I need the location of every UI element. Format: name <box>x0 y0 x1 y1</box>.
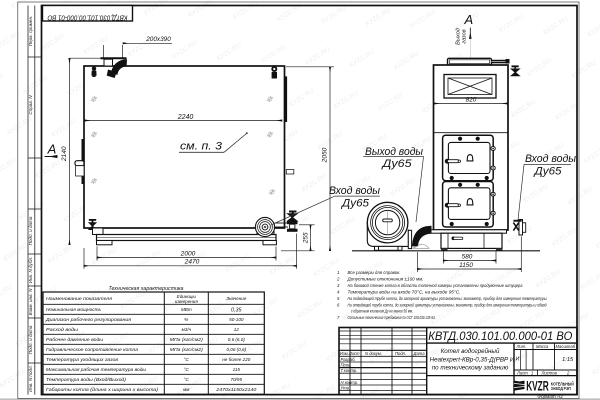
svg-text:255: 255 <box>302 232 309 244</box>
svg-text:Все размеры для справок.: Все размеры для справок. <box>348 270 401 275</box>
svg-text:820: 820 <box>466 97 477 104</box>
svg-text:Подп.: Подп. <box>395 351 406 356</box>
svg-text:ЗАВОД РЭП: ЗАВОД РЭП <box>551 386 571 391</box>
svg-text:см. п. 3: см. п. 3 <box>180 141 223 153</box>
svg-text:Изм.Лист: Изм.Лист <box>340 351 360 356</box>
svg-text:Ду65: Ду65 <box>380 158 412 170</box>
svg-text:Подп. и дата: Подп. и дата <box>28 216 33 245</box>
svg-text:Выход: Выход <box>455 28 461 45</box>
svg-text:Вход воды: Вход воды <box>525 153 576 165</box>
svg-text:Взам. инв. N: Взам. инв. N <box>28 288 33 315</box>
svg-text:Формат А3: Формат А3 <box>537 394 563 399</box>
svg-text:Расход воды: Расход воды <box>46 327 79 332</box>
svg-text:200х390: 200х390 <box>145 36 171 43</box>
svg-text:Температура воды на входе 70°С: Температура воды на входе 70°С, на выход… <box>348 290 461 295</box>
svg-text:Утв.: Утв. <box>341 385 351 390</box>
svg-text:Ду65: Ду65 <box>340 197 370 209</box>
svg-text:Габариты котла (длина х ширина: Габариты котла (длина х ширина х высота) <box>46 387 159 392</box>
svg-text:Выход воды: Выход воды <box>365 146 423 158</box>
svg-text:%: % <box>184 317 188 322</box>
svg-text:2240: 2240 <box>177 114 194 121</box>
svg-text:Вход воды: Вход воды <box>329 185 380 197</box>
svg-text:Номинальная мощность: Номинальная мощность <box>46 307 102 312</box>
svg-text:Пров.: Пров. <box>341 362 352 367</box>
svg-text:На отводящей трубе котла, до з: На отводящей трубе котла, до запорной ар… <box>348 302 547 307</box>
svg-text:мм: мм <box>183 387 190 392</box>
svg-text:70/95: 70/95 <box>231 377 243 382</box>
svg-text:На боковой стенке котла в обла: На боковой стенке котла в области топочн… <box>348 283 524 288</box>
svg-text:по техническому заданию: по техническому заданию <box>432 365 509 372</box>
svg-text:1150: 1150 <box>459 262 473 269</box>
svg-text:0,06 (0,6): 0,06 (0,6) <box>226 347 246 352</box>
svg-text:Справ. N: Справ. N <box>28 95 33 115</box>
svg-text:Гидравлическое сопротивление к: Гидравлическое сопротивление котла <box>46 347 138 352</box>
svg-text:0,6 (6,0): 0,6 (6,0) <box>228 337 246 342</box>
svg-text:Остальные технические требован: Остальные технические требования по ОСТ … <box>348 315 436 320</box>
svg-text:КВТД.030.101.00.000-01 ВО: КВТД.030.101.00.000-01 ВО <box>428 329 572 343</box>
svg-text:12: 12 <box>234 327 240 332</box>
svg-text:N докум.: N докум. <box>365 351 382 356</box>
svg-text:580: 580 <box>462 253 473 260</box>
svg-text:измерения: измерения <box>175 299 199 304</box>
svg-text:1:15: 1:15 <box>562 357 574 363</box>
svg-text:Т.контр.: Т.контр. <box>341 368 358 373</box>
svg-text:Ду65: Ду65 <box>532 165 562 177</box>
svg-text:А: А <box>47 142 57 157</box>
svg-text:2470х1150х2140: 2470х1150х2140 <box>215 387 257 392</box>
svg-text:А: А <box>463 12 473 27</box>
svg-text:Лит.: Лит. <box>516 344 527 349</box>
svg-text:115: 115 <box>233 367 241 372</box>
svg-text:м3/ч: м3/ч <box>182 327 192 332</box>
svg-text:Рабочее давление воды: Рабочее давление воды <box>46 337 104 342</box>
svg-text:МВт: МВт <box>181 307 192 312</box>
svg-text:Дата: Дата <box>413 351 426 356</box>
svg-text:Температура воды (Вход/Выход): Температура воды (Вход/Выход) <box>46 377 127 382</box>
svg-text:KVZR: KVZR <box>526 379 549 394</box>
svg-text:Масса: Масса <box>536 344 549 349</box>
svg-text:Лист: Лист <box>516 370 528 375</box>
svg-text:Н.контр.: Н.контр. <box>341 380 359 385</box>
svg-text:МПа (кгс/см2): МПа (кгс/см2) <box>170 337 204 342</box>
svg-text:Котел водогрейный: Котел водогрейный <box>441 348 500 355</box>
svg-text:2140: 2140 <box>61 146 68 162</box>
svg-text:2000: 2000 <box>180 250 196 257</box>
svg-text:Максимальная рабочая температу: Максимальная рабочая температура воды <box>46 367 147 372</box>
svg-text:не более 220: не более 220 <box>222 357 250 362</box>
svg-text:Наименование показателя: Наименование показателя <box>46 296 113 301</box>
svg-text:1: 1 <box>531 370 533 375</box>
svg-text:0,35: 0,35 <box>231 307 242 313</box>
svg-text:50-100: 50-100 <box>229 317 244 322</box>
svg-text:Диапазон рабочего регулировани: Диапазон рабочего регулирования <box>45 317 132 322</box>
svg-text:Температура уходящих газов: Температура уходящих газов <box>46 357 119 362</box>
svg-text:с обратным клапаном Ду не мен: с обратным клапаном Ду не менее 50 мм. <box>351 309 413 314</box>
svg-text:Техническая характеристика: Техническая характеристика <box>109 286 184 292</box>
svg-text:Инв. N подл.: Инв. N подл. <box>28 365 33 392</box>
svg-text:Значение: Значение <box>226 296 247 301</box>
svg-text:КВТД.030.101.00.000-01 ВО: КВТД.030.101.00.000-01 ВО <box>47 14 127 23</box>
svg-text:Перв. примен.: Перв. примен. <box>28 16 33 47</box>
svg-text:На подводящей трубе котла, до: На подводящей трубе котла, до запорной а… <box>348 296 548 301</box>
svg-text:газов: газов <box>462 29 468 43</box>
svg-text:И: И <box>516 357 520 363</box>
svg-text:Масштаб: Масштаб <box>556 344 576 349</box>
svg-text:Разраб.: Разраб. <box>341 357 356 362</box>
svg-text:Heatexpert-КВр-0,35-Д(РВР И: Heatexpert-КВр-0,35-Д(РВР И <box>430 357 515 364</box>
svg-text:°С: °С <box>184 367 190 372</box>
svg-text:Листов: Листов <box>541 370 558 375</box>
svg-text:2470: 2470 <box>184 259 200 266</box>
svg-text:2050: 2050 <box>321 147 328 163</box>
svg-text:Инв. N дубл.: Инв. N дубл. <box>28 257 33 284</box>
svg-text:Подп. и дата: Подп. и дата <box>28 325 33 354</box>
svg-text:МПа (кгс/см2): МПа (кгс/см2) <box>170 347 204 352</box>
svg-text:°С: °С <box>184 377 190 382</box>
svg-text:Допустимые отклонения ±100 мм.: Допустимые отклонения ±100 мм. <box>346 277 423 282</box>
svg-text:°С: °С <box>184 357 190 362</box>
